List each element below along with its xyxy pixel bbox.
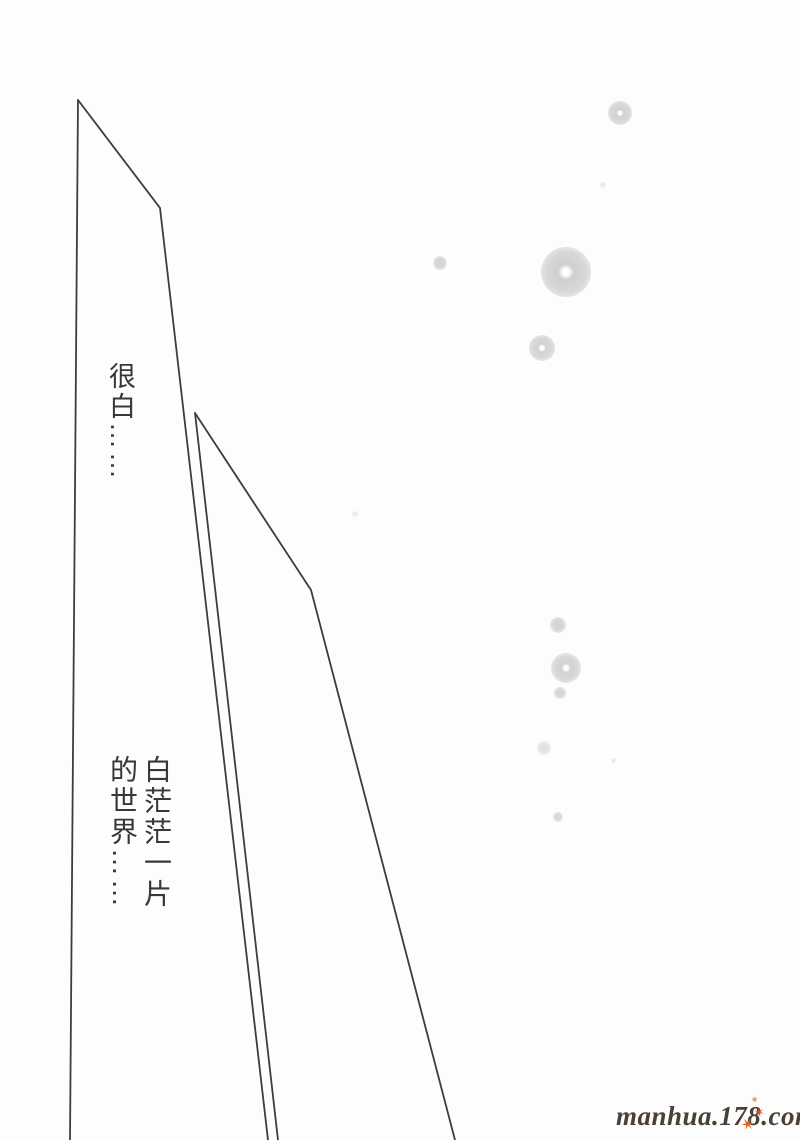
caption-very-white: 很白……: [103, 362, 136, 482]
site-watermark: manhua.178.com ✶✶✶: [616, 1101, 800, 1140]
speed-lines-artwork: [0, 0, 800, 1140]
mid-beam-right-edge: [195, 413, 455, 1140]
manga-page: 很白…… 白茫茫一片 的世界…… manhua.178.com ✶✶✶: [0, 0, 800, 1140]
watermark-text: manhua.178.com: [616, 1101, 800, 1132]
left-beam-right-edge: [78, 100, 268, 1140]
caption-white-world: 白茫茫一片 的世界……: [105, 755, 173, 910]
left-beam-left-edge: [70, 100, 78, 1140]
